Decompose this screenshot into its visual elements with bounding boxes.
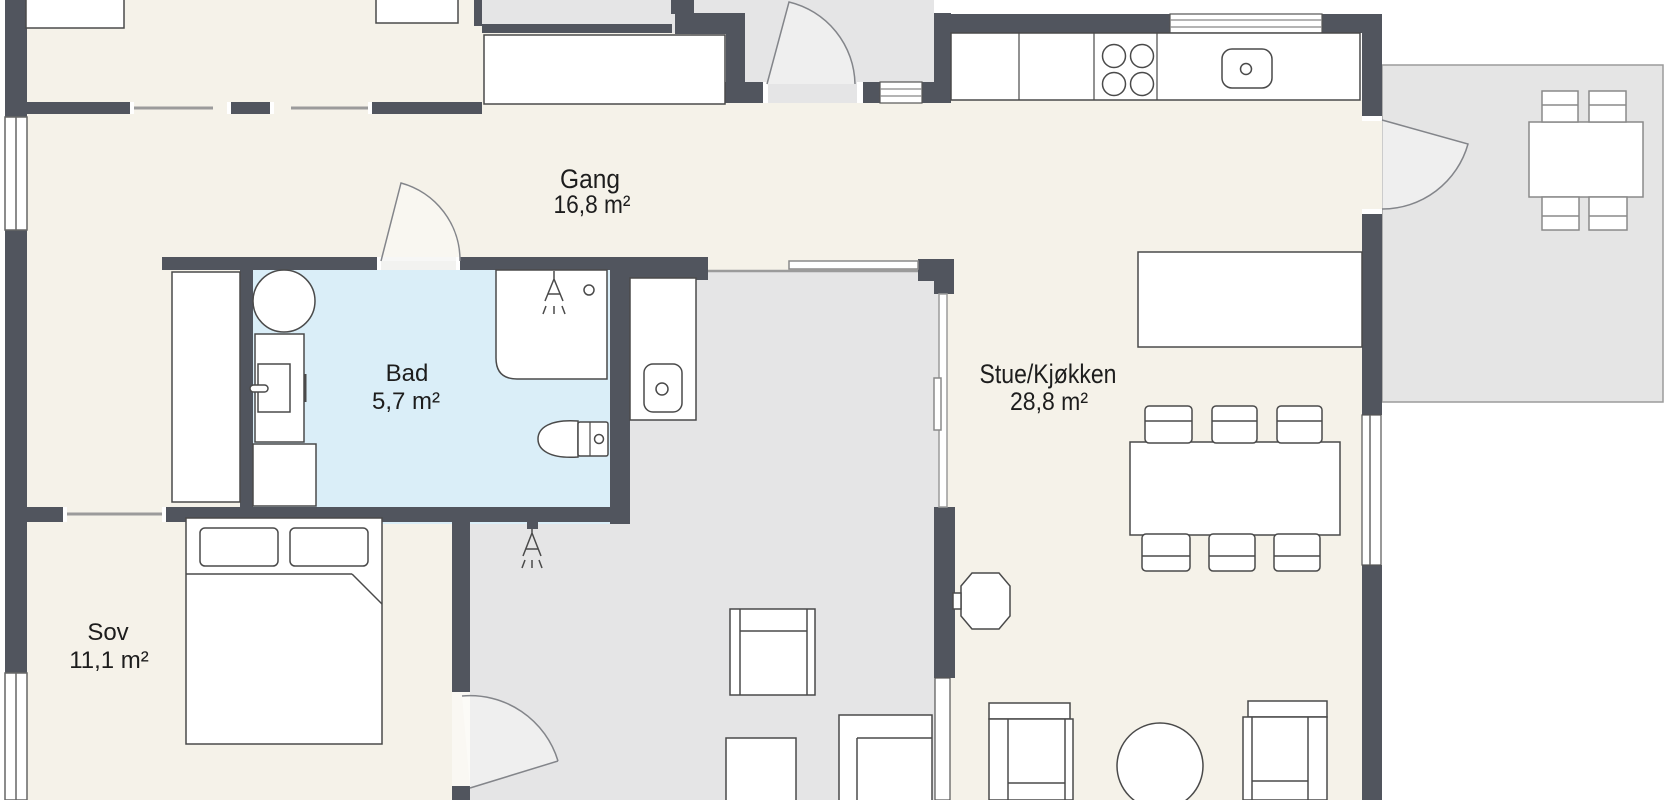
svg-text:Gang: Gang (560, 164, 620, 194)
svg-text:Bad: Bad (386, 360, 429, 387)
svg-text:11,1 m²: 11,1 m² (69, 647, 149, 674)
svg-text:5,7 m²: 5,7 m² (372, 388, 440, 415)
svg-text:Sov: Sov (87, 619, 128, 646)
svg-text:28,8 m²: 28,8 m² (1010, 388, 1088, 416)
svg-text:Stue/Kjøkken: Stue/Kjøkken (980, 359, 1117, 389)
svg-text:16,8 m²: 16,8 m² (554, 191, 631, 219)
